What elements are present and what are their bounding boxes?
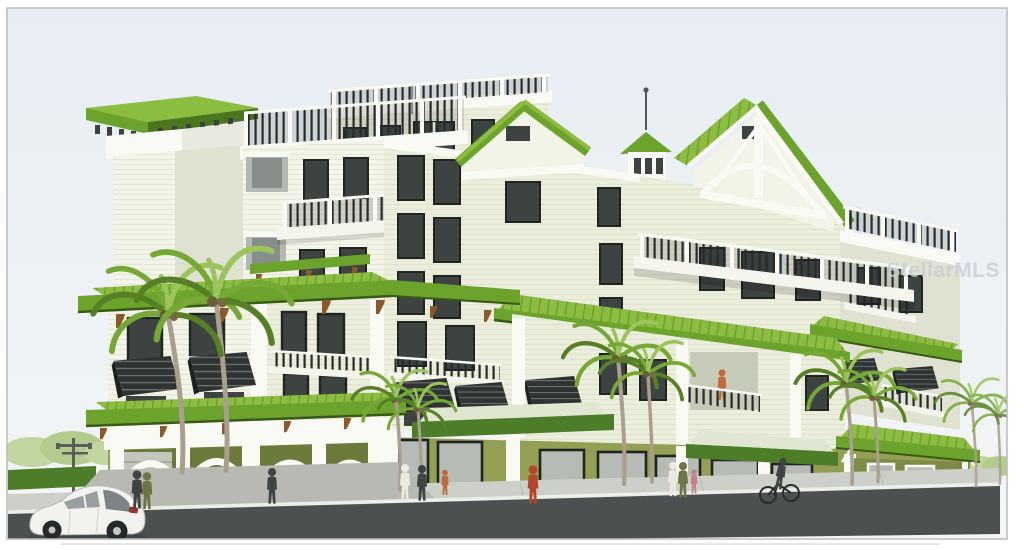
- architectural-rendering: StellarMLS: [0, 0, 1024, 550]
- hedge: [8, 466, 96, 490]
- watermark-text: StellarMLS: [886, 259, 1000, 282]
- rendering-page: StellarMLS: [0, 0, 1024, 550]
